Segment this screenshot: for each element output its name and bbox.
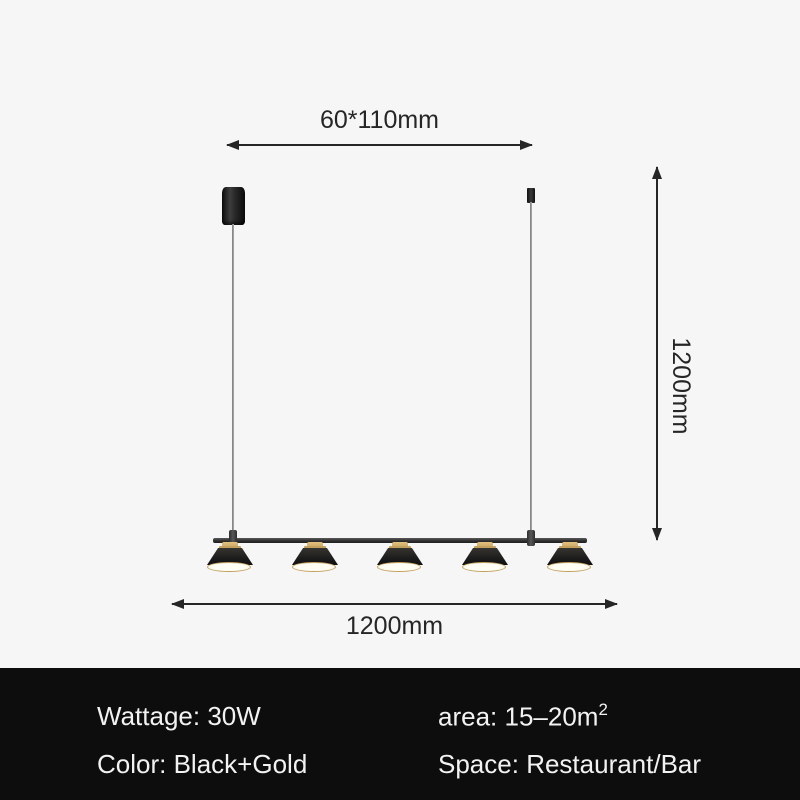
spec-area-label: area: (438, 702, 497, 732)
shade-gold-neck (477, 542, 493, 549)
bar-length-arrow (172, 603, 617, 605)
shade-gold-neck (307, 542, 323, 549)
spec-area-superscript: 2 (598, 700, 607, 719)
shade-diffuser-rim (292, 562, 336, 572)
suspension-wire-left (232, 224, 234, 540)
lamp-shade-3 (377, 542, 423, 573)
spec-area-value: 15–20m (505, 702, 599, 732)
arrow-left-icon (171, 599, 184, 609)
shade-diffuser-rim (462, 562, 506, 572)
spec-wattage-label: Wattage: (97, 701, 200, 731)
arrow-up-icon (652, 166, 662, 179)
arrow-left-icon (226, 140, 239, 150)
lamp-shade-2 (292, 542, 338, 573)
spec-area: area: 15–20m2 (438, 701, 608, 733)
suspension-wire-right (530, 202, 532, 540)
spec-color: Color: Black+Gold (97, 749, 307, 780)
lamp-shade-5 (547, 542, 593, 573)
shade-gold-neck (392, 542, 408, 549)
lamp-shade-1 (207, 542, 253, 573)
arrow-right-icon (520, 140, 533, 150)
spec-color-label: Color: (97, 749, 166, 779)
drop-height-arrow (656, 167, 658, 540)
spec-wattage-value: 30W (207, 701, 260, 731)
spec-wattage: Wattage: 30W (97, 701, 261, 732)
shade-diffuser-rim (547, 562, 591, 572)
shade-diffuser-rim (207, 562, 251, 572)
bar-joint-right (527, 530, 535, 546)
arrow-down-icon (652, 528, 662, 541)
drop-height-label: 1200mm (667, 321, 695, 451)
spec-space: Space: Restaurant/Bar (438, 749, 701, 780)
arrow-right-icon (605, 599, 618, 609)
spec-space-label: Space: (438, 749, 519, 779)
shade-diffuser-rim (377, 562, 421, 572)
product-dimension-diagram: 60*110mm 1200mm (0, 0, 800, 800)
canopy-size-arrow (227, 144, 532, 146)
spec-color-value: Black+Gold (174, 749, 308, 779)
lamp-shade-4 (462, 542, 508, 573)
canopy-size-label: 60*110mm (227, 106, 532, 135)
bar-length-label: 1200mm (172, 612, 617, 641)
specs-footer: Wattage: 30W area: 15–20m2 Color: Black+… (0, 668, 800, 800)
ceiling-canopy (222, 187, 245, 225)
wire-top-connector-right (527, 188, 535, 203)
spec-space-value: Restaurant/Bar (526, 749, 701, 779)
shade-gold-neck (562, 542, 578, 549)
shade-gold-neck (222, 542, 238, 549)
